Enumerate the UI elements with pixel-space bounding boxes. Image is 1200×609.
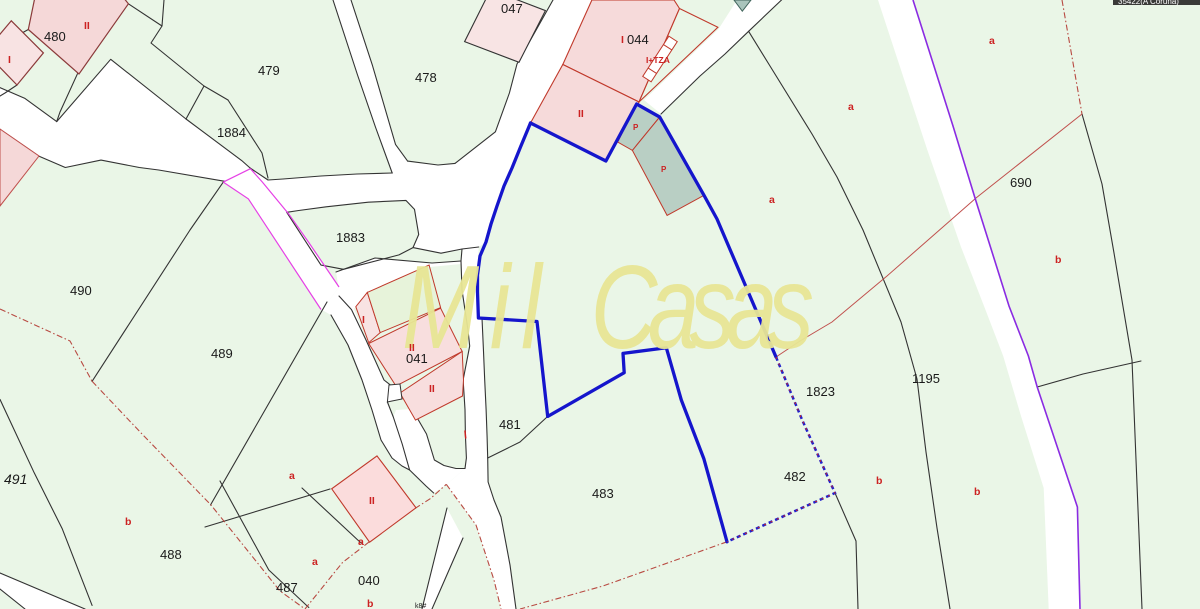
- svg-text:044: 044: [627, 32, 649, 47]
- svg-text:b: b: [1055, 254, 1061, 266]
- svg-text:I+TZA: I+TZA: [646, 55, 670, 65]
- svg-text:478: 478: [415, 70, 437, 85]
- svg-text:480: 480: [44, 29, 66, 44]
- svg-text:1883: 1883: [336, 230, 365, 245]
- svg-text:II: II: [409, 342, 415, 354]
- svg-text:b: b: [876, 475, 882, 487]
- svg-text:a: a: [769, 194, 775, 206]
- svg-text:II: II: [429, 383, 435, 395]
- svg-text:b: b: [974, 486, 980, 498]
- svg-text:a: a: [989, 35, 995, 47]
- svg-text:047: 047: [501, 1, 523, 16]
- svg-text:479: 479: [258, 63, 280, 78]
- svg-text:489: 489: [211, 346, 233, 361]
- svg-text:1195: 1195: [912, 371, 940, 386]
- svg-text:I: I: [621, 34, 624, 46]
- svg-text:P: P: [633, 123, 639, 132]
- svg-text:491: 491: [4, 471, 27, 487]
- svg-text:040: 040: [358, 573, 380, 588]
- svg-text:II: II: [84, 20, 90, 32]
- svg-text:P: P: [661, 165, 667, 174]
- svg-text:1884: 1884: [217, 125, 246, 140]
- svg-text:481: 481: [499, 417, 521, 432]
- svg-text:a: a: [312, 556, 318, 568]
- svg-text:a: a: [358, 536, 364, 548]
- svg-text:482: 482: [784, 469, 806, 484]
- svg-text:a: a: [848, 101, 854, 113]
- svg-text:II: II: [369, 495, 375, 507]
- svg-text:I: I: [8, 54, 11, 66]
- svg-text:Casas: Casas: [591, 241, 812, 374]
- svg-text:b: b: [367, 598, 373, 609]
- svg-text:488: 488: [160, 547, 182, 562]
- svg-text:490: 490: [70, 283, 92, 298]
- svg-text:b: b: [125, 516, 131, 528]
- svg-text:k8#: k8#: [415, 603, 426, 609]
- svg-text:483: 483: [592, 486, 614, 501]
- svg-text:35422(A Coruña): 35422(A Coruña): [1118, 0, 1179, 6]
- svg-text:1823: 1823: [806, 384, 835, 399]
- svg-text:690: 690: [1010, 175, 1032, 190]
- svg-text:487: 487: [276, 580, 298, 595]
- svg-text:I: I: [362, 314, 365, 326]
- svg-text:II: II: [578, 108, 584, 120]
- svg-text:a: a: [289, 470, 295, 482]
